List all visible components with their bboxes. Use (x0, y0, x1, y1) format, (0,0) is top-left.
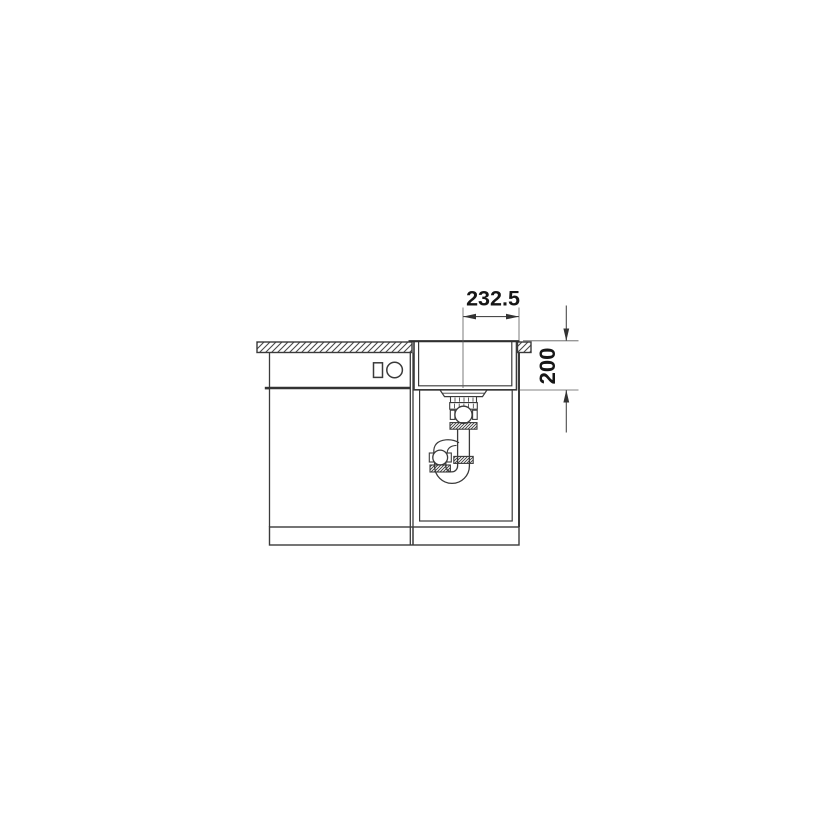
ball-joint (455, 406, 472, 423)
trap-elbow-inner-curve (447, 445, 456, 452)
plinth (270, 527, 520, 545)
dimension-width-label: 232.5 (466, 287, 520, 311)
ball-joint-left-tab (450, 410, 455, 419)
trap-ball-joint (433, 450, 448, 465)
coupling-nut-trap (430, 465, 450, 472)
drawer-knob-square (374, 363, 383, 378)
drawer-knob-round (387, 362, 403, 378)
drain-assembly (429, 390, 487, 483)
drawer-divider-tick (265, 387, 270, 390)
sink-installation-drawing: 232.5 200 (0, 0, 830, 830)
coupling-nut-pipe (454, 456, 473, 463)
base-cabinet-left (265, 353, 411, 545)
countertop-left-section (257, 342, 412, 353)
dimension-depth: 200 (520, 306, 579, 433)
coupling-nut-upper (450, 423, 477, 430)
page: 232.5 200 (0, 0, 830, 830)
countertop-right-section (518, 342, 532, 353)
sink-bowl-outer-wall (414, 342, 517, 390)
dimension-depth-arrow-top (563, 329, 569, 342)
dimension-width-arrow-left (463, 314, 476, 320)
dimension-depth-arrow-bottom (563, 390, 569, 403)
dimension-depth-label: 200 (535, 348, 560, 385)
ball-joint-right-tab (473, 410, 478, 419)
plinth-outline (270, 527, 520, 545)
sink-bowl (409, 341, 520, 390)
dimension-width-arrow-right (506, 314, 519, 320)
